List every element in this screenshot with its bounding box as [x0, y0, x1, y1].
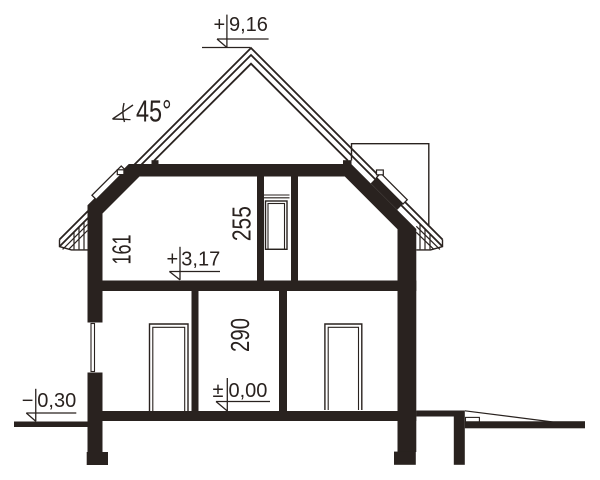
svg-text:161: 161 [106, 235, 136, 265]
svg-text:0,30: 0,30 [37, 390, 76, 412]
svg-text:255: 255 [227, 206, 257, 241]
svg-text:9,16: 9,16 [229, 14, 268, 36]
svg-text:+: + [167, 249, 179, 271]
svg-text:0,00: 0,00 [229, 380, 268, 402]
svg-text:3,17: 3,17 [181, 249, 220, 271]
svg-text:−: − [22, 390, 34, 412]
svg-text:+: + [214, 14, 226, 36]
svg-text:290: 290 [225, 318, 255, 352]
svg-text:±: ± [213, 380, 224, 402]
svg-text:45°: 45° [136, 93, 172, 128]
